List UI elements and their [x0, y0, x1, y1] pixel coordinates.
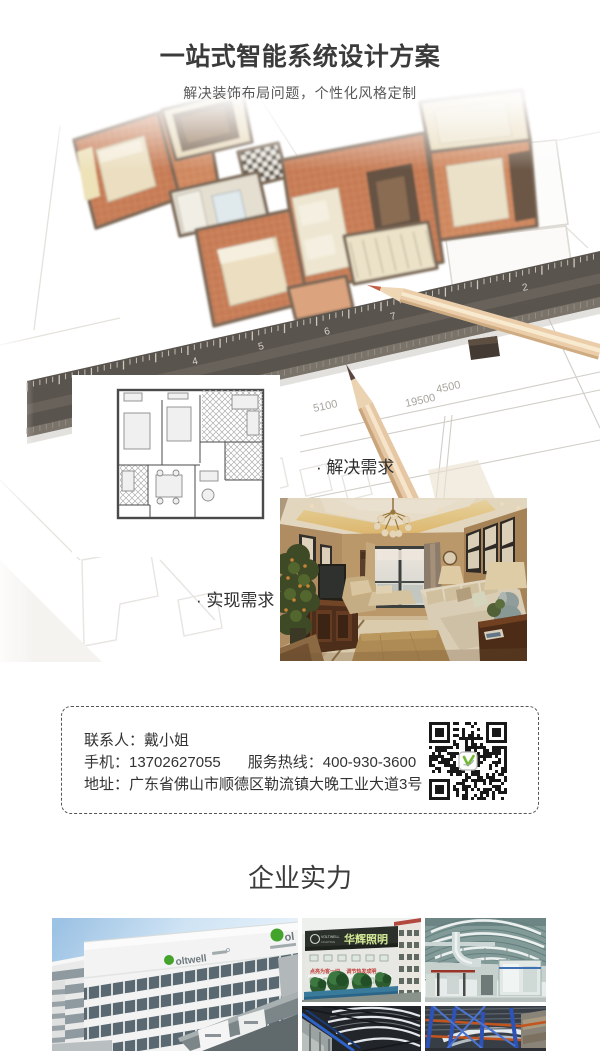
- svg-text:LIGHTING: LIGHTING: [321, 940, 336, 944]
- svg-text:ol: ol: [284, 931, 295, 944]
- svg-text:华辉照明: 华辉照明: [344, 932, 388, 946]
- svg-text:VOLTWELL: VOLTWELL: [321, 935, 339, 939]
